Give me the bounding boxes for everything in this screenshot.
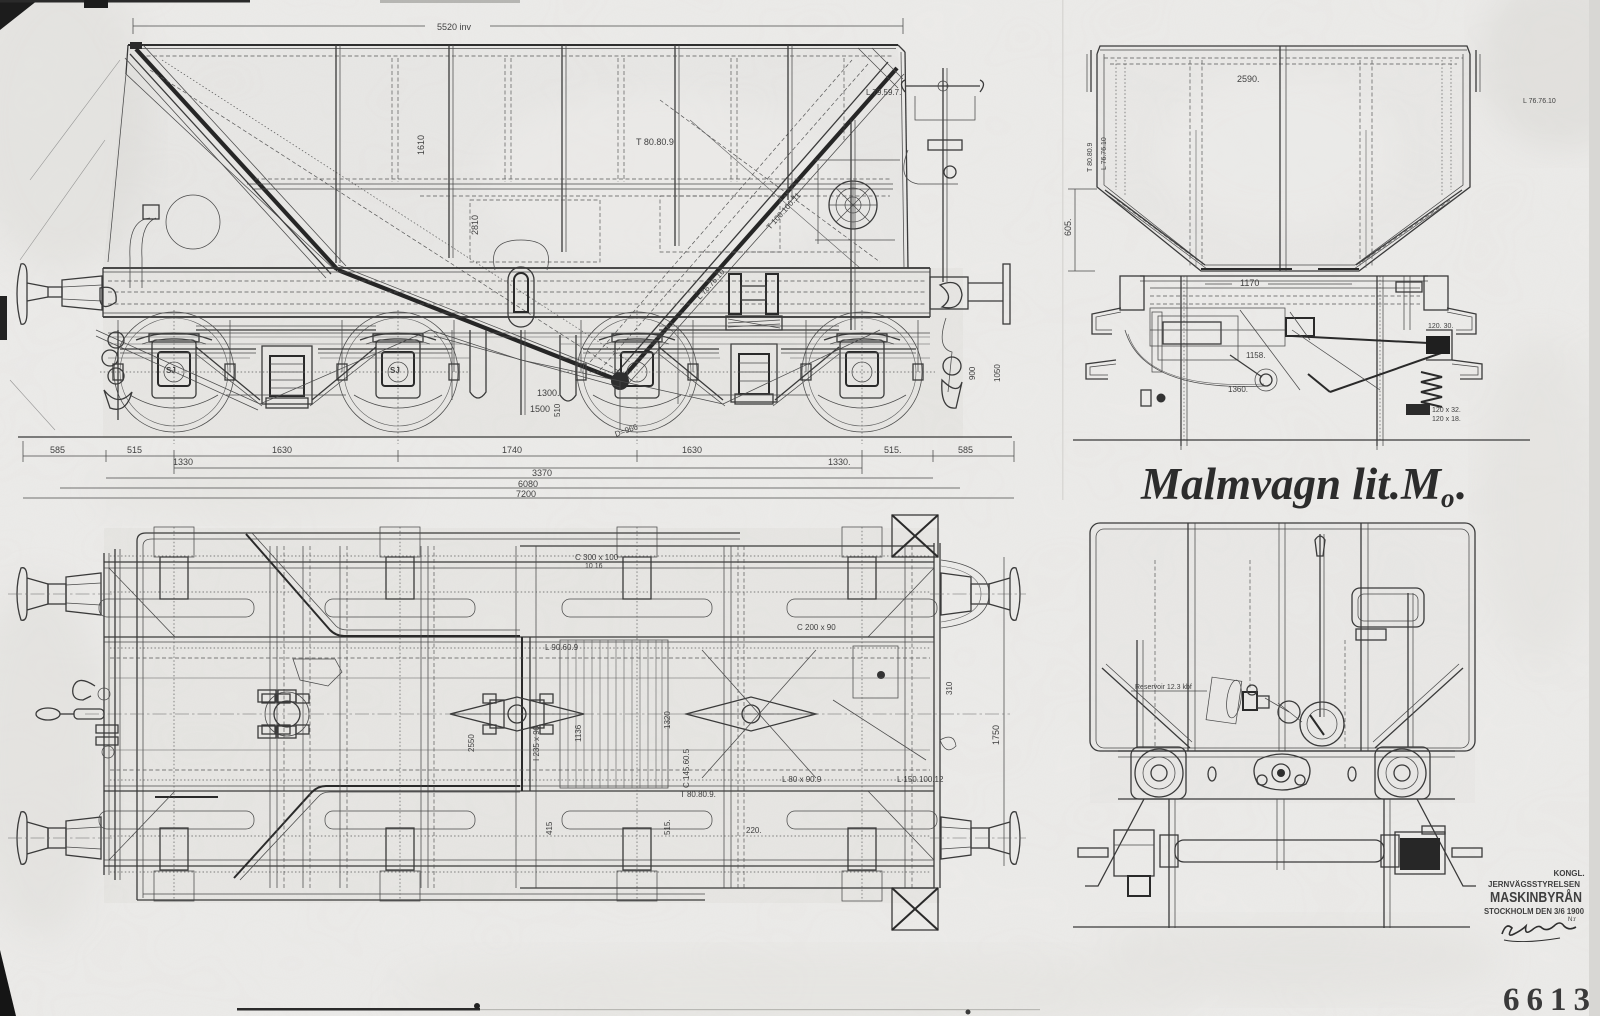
svg-text:1750: 1750 xyxy=(991,725,1001,745)
svg-text:7200: 7200 xyxy=(516,489,536,499)
svg-text:JERNVÄGSSTYRELSEN: JERNVÄGSSTYRELSEN xyxy=(1488,880,1580,889)
svg-text:1170: 1170 xyxy=(1240,278,1259,288)
svg-text:1330: 1330 xyxy=(173,457,193,467)
svg-text:6613: 6613 xyxy=(1503,982,1597,1016)
svg-text:L 80 x 90.9: L 80 x 90.9 xyxy=(782,775,822,784)
svg-text:o: o xyxy=(1441,483,1455,513)
svg-text:L 76.76.10: L 76.76.10 xyxy=(1101,137,1108,170)
svg-text:L 150.100.12: L 150.100.12 xyxy=(897,775,944,784)
svg-text:T 80.80.9: T 80.80.9 xyxy=(636,137,674,147)
svg-text:I 235 x 90: I 235 x 90 xyxy=(532,725,541,761)
svg-text:1330.: 1330. xyxy=(828,457,851,467)
svg-text:6080: 6080 xyxy=(518,479,538,489)
svg-text:2550: 2550 xyxy=(467,734,476,752)
svg-text:510: 510 xyxy=(553,403,562,417)
svg-text:605.: 605. xyxy=(1063,218,1073,236)
svg-text:515: 515 xyxy=(127,445,142,455)
svg-text:T 80.80.9: T 80.80.9 xyxy=(1087,142,1094,172)
svg-text:585: 585 xyxy=(50,445,65,455)
svg-text:3370: 3370 xyxy=(532,468,552,478)
svg-text:1158.: 1158. xyxy=(1246,351,1265,360)
svg-text:MASKINBYRÅN: MASKINBYRÅN xyxy=(1490,889,1582,906)
svg-text:1610: 1610 xyxy=(416,135,426,155)
svg-text:1500: 1500 xyxy=(530,404,550,414)
svg-text:Reservoir 12.3 kbf: Reservoir 12.3 kbf xyxy=(1135,684,1192,691)
svg-text:1630: 1630 xyxy=(682,445,702,455)
svg-text:T 80.80.9.: T 80.80.9. xyxy=(680,790,716,799)
svg-text:L 79.59.7.: L 79.59.7. xyxy=(866,88,901,97)
svg-text:C 200 x 90: C 200 x 90 xyxy=(797,623,836,632)
svg-text:10 16: 10 16 xyxy=(585,563,603,570)
svg-text:1740: 1740 xyxy=(502,445,522,455)
svg-text:L 76.76.10: L 76.76.10 xyxy=(1523,98,1556,105)
svg-text:2810: 2810 xyxy=(470,215,480,235)
svg-text:1360.: 1360. xyxy=(1228,385,1248,394)
svg-text:120 x 18.: 120 x 18. xyxy=(1432,416,1461,423)
svg-text:585: 585 xyxy=(958,445,973,455)
svg-text:.: . xyxy=(1456,459,1467,509)
svg-text:L 90.60.9: L 90.60.9 xyxy=(545,643,579,652)
svg-text:415: 415 xyxy=(545,821,554,835)
svg-text:2590.: 2590. xyxy=(1237,74,1260,84)
svg-text:KONGL.: KONGL. xyxy=(1553,869,1584,878)
svg-text:1136: 1136 xyxy=(574,724,583,742)
svg-text:N:r: N:r xyxy=(1568,917,1576,923)
svg-text:1630: 1630 xyxy=(272,445,292,455)
svg-text:120 x 32.: 120 x 32. xyxy=(1432,407,1461,414)
svg-text:310: 310 xyxy=(945,681,954,695)
svg-text:C 300 x 100: C 300 x 100 xyxy=(575,553,619,562)
svg-text:Malmvagn lit.M: Malmvagn lit.M xyxy=(1140,459,1443,509)
svg-text:120. 30.: 120. 30. xyxy=(1428,323,1453,330)
svg-text:STOCKHOLM DEN 3/6 1900: STOCKHOLM DEN 3/6 1900 xyxy=(1484,907,1585,916)
svg-text:1050: 1050 xyxy=(993,364,1002,382)
svg-text:1320: 1320 xyxy=(663,711,672,729)
svg-text:900: 900 xyxy=(968,366,977,380)
svg-text:515.: 515. xyxy=(884,445,902,455)
svg-text:515.: 515. xyxy=(663,819,672,835)
svg-text:C 145.60.5: C 145.60.5 xyxy=(682,748,691,788)
svg-text:220.: 220. xyxy=(746,826,762,835)
svg-text:5520 inv: 5520 inv xyxy=(437,22,472,32)
svg-text:1300.: 1300. xyxy=(537,388,560,398)
